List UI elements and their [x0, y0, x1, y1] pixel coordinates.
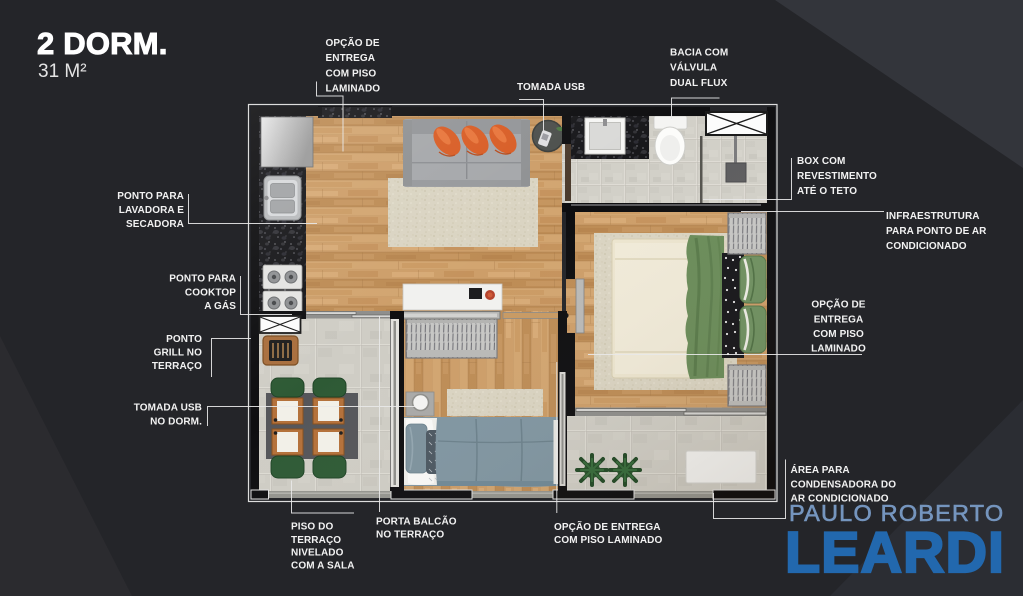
svg-text:31 M²: 31 M²	[38, 61, 87, 82]
svg-text:TOMADA USB: TOMADA USB	[517, 82, 585, 93]
svg-text:COOKTOP: COOKTOP	[185, 288, 236, 299]
svg-text:PORTA BALCÃO: PORTA BALCÃO	[376, 515, 457, 528]
svg-text:NO DORM.: NO DORM.	[150, 417, 202, 428]
svg-text:ATÉ O TETO: ATÉ O TETO	[797, 184, 857, 197]
svg-text:A GÁS: A GÁS	[204, 299, 236, 312]
svg-text:COM PISO LAMINADO: COM PISO LAMINADO	[554, 535, 662, 546]
svg-text:COM A SALA: COM A SALA	[291, 561, 355, 572]
svg-text:2 DORM.: 2 DORM.	[37, 26, 168, 61]
svg-text:OPÇÃO DE: OPÇÃO DE	[326, 36, 380, 49]
svg-text:INFRAESTRUTURA: INFRAESTRUTURA	[886, 211, 980, 222]
svg-text:LAMINADO: LAMINADO	[811, 344, 866, 355]
svg-text:GRILL NO: GRILL NO	[154, 348, 203, 359]
svg-text:COM PISO: COM PISO	[813, 329, 864, 340]
svg-text:BOX COM: BOX COM	[797, 156, 845, 167]
svg-text:BACIA COM: BACIA COM	[670, 48, 728, 59]
svg-text:PARA PONTO DE AR: PARA PONTO DE AR	[886, 226, 987, 237]
svg-text:ÁREA PARA: ÁREA PARA	[791, 463, 850, 476]
svg-text:LAMINADO: LAMINADO	[326, 84, 381, 95]
svg-text:PONTO PARA: PONTO PARA	[169, 274, 236, 285]
svg-text:DUAL FLUX: DUAL FLUX	[670, 78, 728, 89]
svg-text:PISO DO: PISO DO	[291, 522, 333, 533]
svg-text:PONTO PARA: PONTO PARA	[117, 191, 184, 202]
svg-text:LEARDI: LEARDI	[785, 521, 1005, 585]
svg-text:REVESTIMENTO: REVESTIMENTO	[797, 171, 877, 182]
svg-text:CONDICIONADO: CONDICIONADO	[886, 241, 967, 252]
svg-text:NIVELADO: NIVELADO	[291, 548, 344, 559]
svg-text:TERRAÇO: TERRAÇO	[291, 535, 341, 546]
svg-text:TOMADA USB: TOMADA USB	[134, 403, 202, 414]
svg-text:CONDENSADORA DO: CONDENSADORA DO	[791, 480, 897, 491]
svg-text:COM PISO: COM PISO	[326, 69, 377, 80]
svg-text:ENTREGA: ENTREGA	[814, 315, 864, 326]
svg-text:ENTREGA: ENTREGA	[326, 53, 376, 64]
svg-text:OPÇÃO DE: OPÇÃO DE	[811, 298, 865, 311]
svg-text:LAVADORA E: LAVADORA E	[119, 205, 184, 216]
svg-text:VÁLVULA: VÁLVULA	[670, 61, 717, 74]
svg-text:OPÇÃO DE ENTREGA: OPÇÃO DE ENTREGA	[554, 520, 661, 533]
svg-text:SECADORA: SECADORA	[126, 219, 184, 230]
svg-text:NO TERRAÇO: NO TERRAÇO	[376, 530, 444, 541]
svg-text:PONTO: PONTO	[166, 334, 202, 345]
svg-text:TERRAÇO: TERRAÇO	[152, 361, 202, 372]
